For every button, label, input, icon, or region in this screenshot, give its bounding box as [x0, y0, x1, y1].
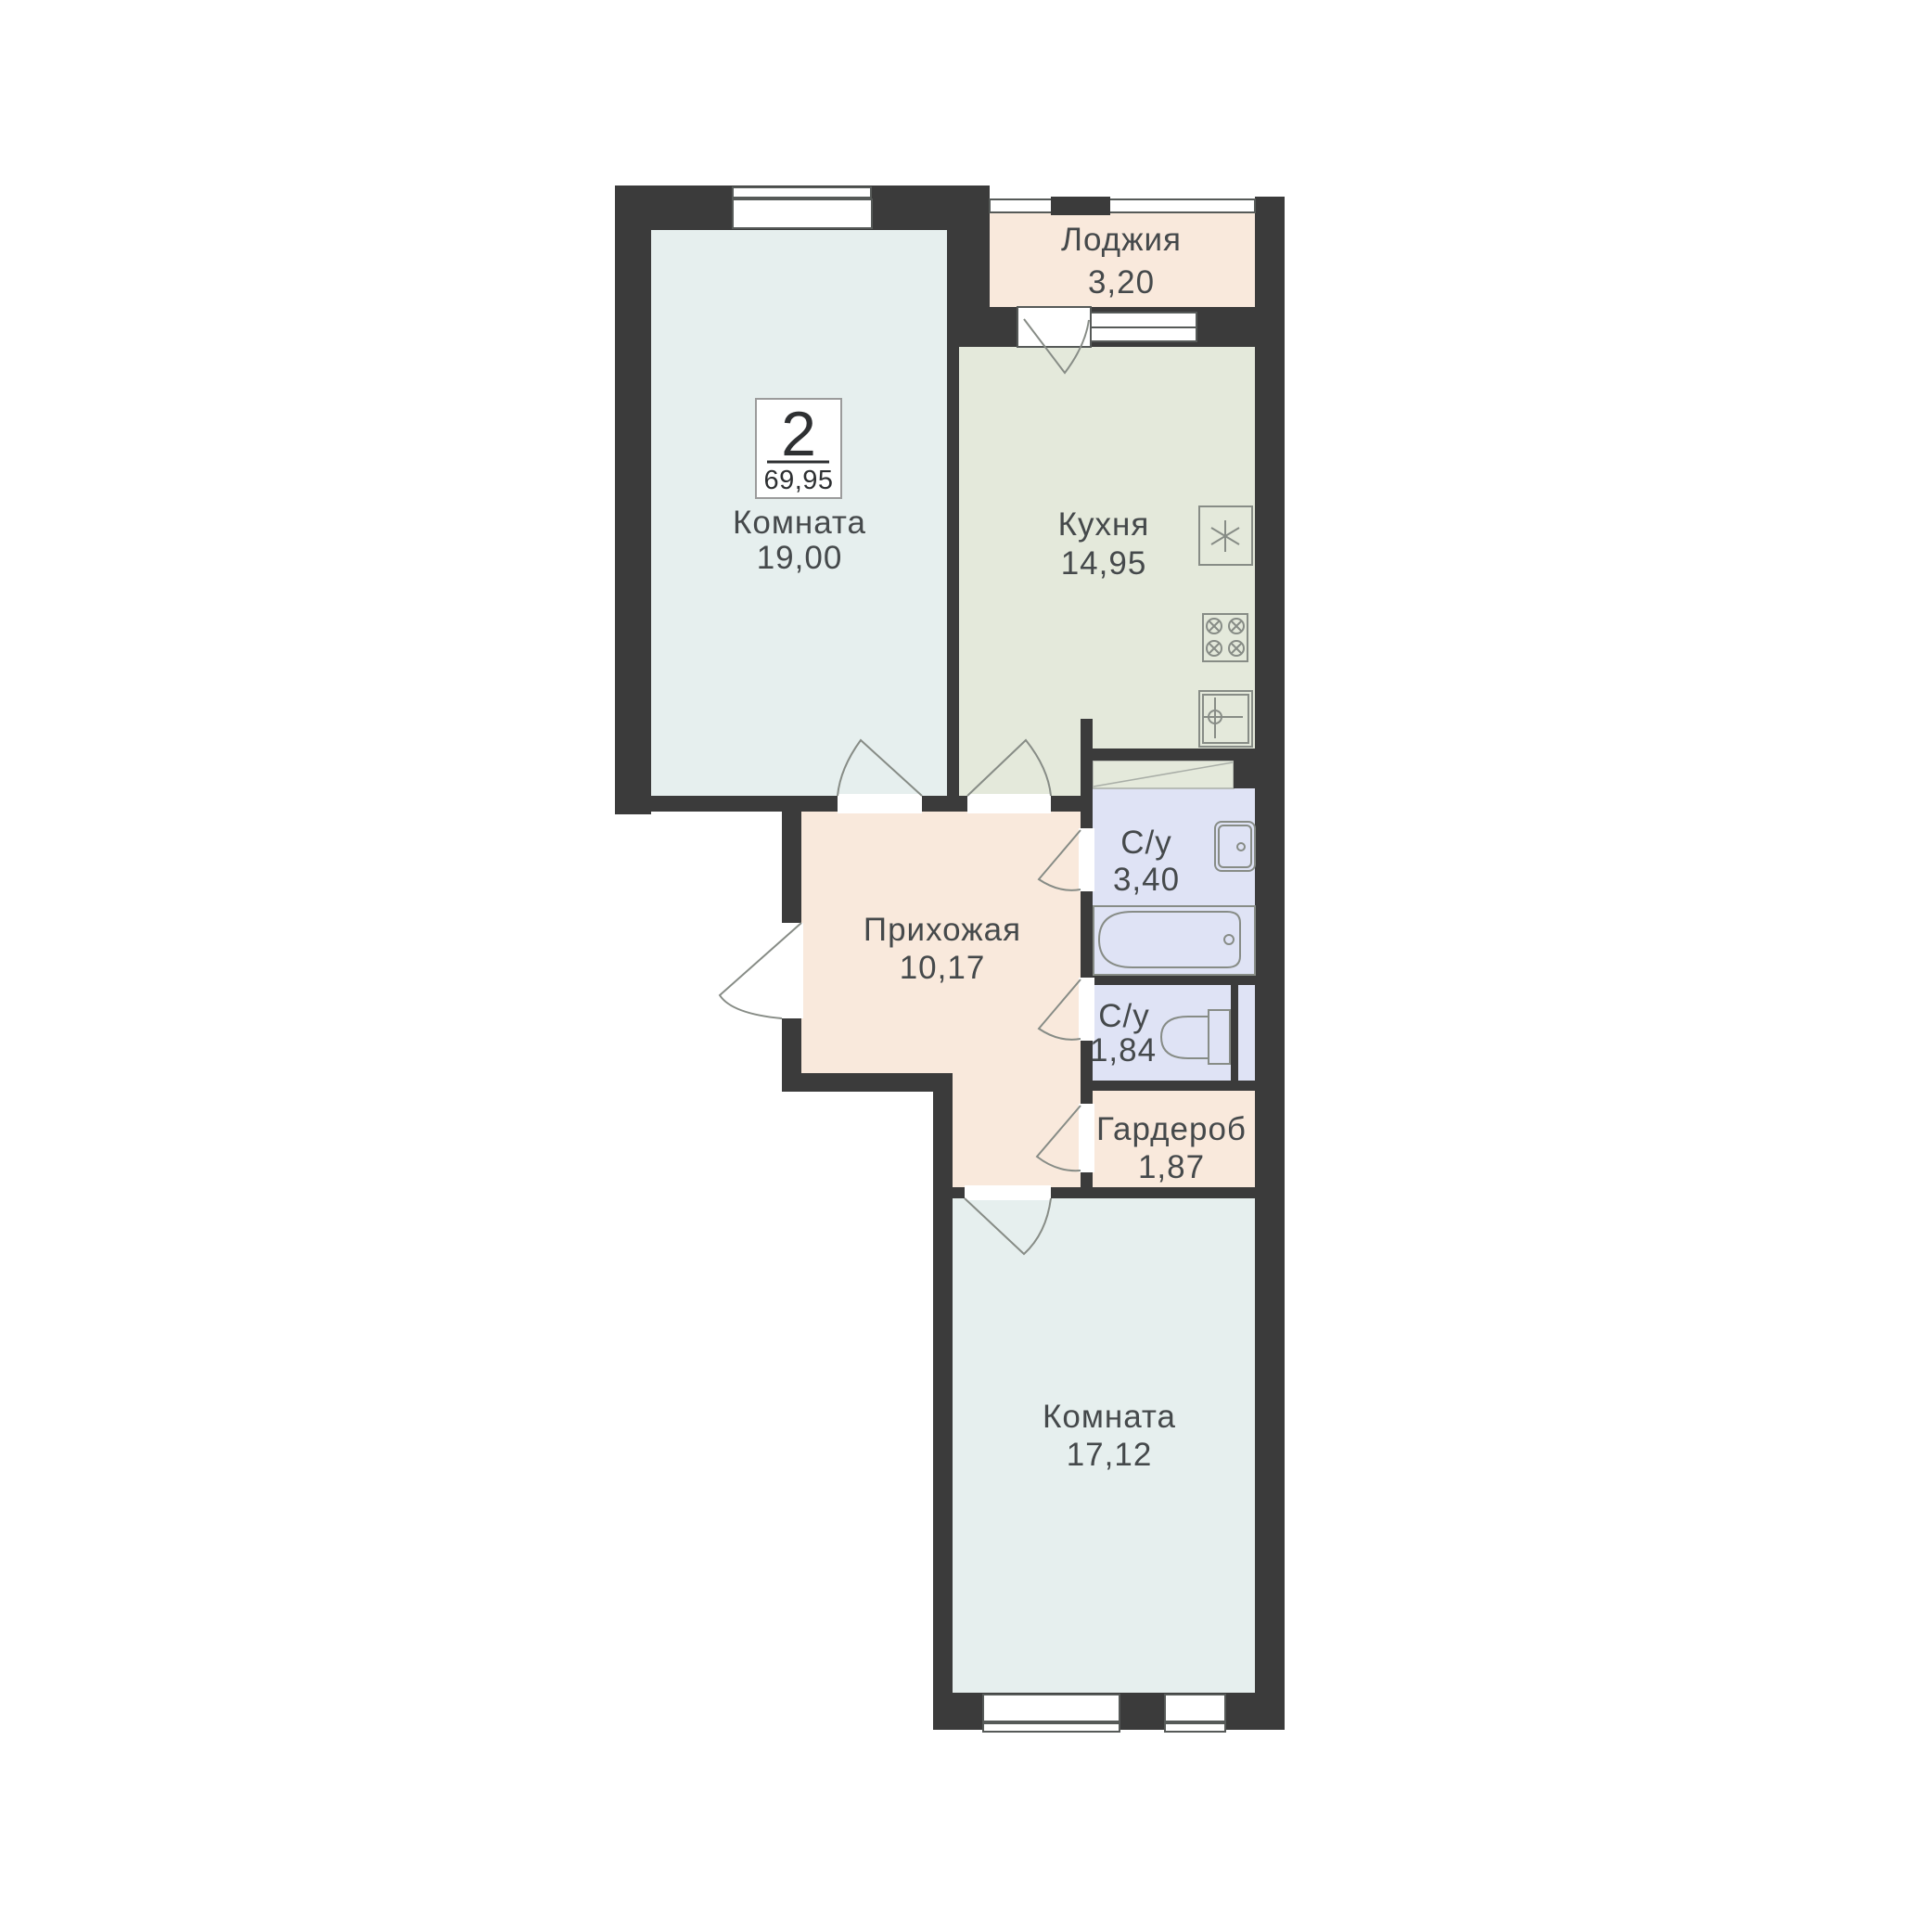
apartment-badge: 2 69,95 [756, 399, 841, 498]
room-label: С/у [1098, 998, 1150, 1034]
kitchen-duct-niche [1093, 761, 1234, 788]
wall-segment [959, 186, 990, 307]
room-label-bathroom: С/у 3,40 [1113, 825, 1180, 898]
floor-plan: Лоджия 3,20 Комната 19,00 Кухня 14,95 Пр… [0, 0, 1932, 1932]
wall-segment [615, 796, 838, 812]
window-living-2-a-sill [983, 1723, 1120, 1732]
room-area: 14,95 [1061, 545, 1147, 582]
loggia-glazing-post [1051, 197, 1110, 215]
window-living-1-sill [733, 187, 871, 198]
window-living-2-b [1165, 1695, 1225, 1721]
window-living-2-b-sill [1165, 1723, 1225, 1732]
room-area: 3,40 [1113, 862, 1180, 898]
door-opening-toilet [1079, 978, 1094, 1041]
wall-segment [1255, 197, 1285, 1730]
room-area: 3,20 [1088, 264, 1155, 301]
room-area: 1,87 [1138, 1149, 1205, 1185]
room-area: 19,00 [757, 540, 843, 576]
wall-segment [615, 186, 651, 814]
door-opening-entrance [780, 923, 803, 1018]
room-label: Прихожая [864, 912, 1021, 948]
wall-segment [1093, 975, 1255, 985]
door-opening-living-2 [965, 1185, 1051, 1200]
room-area: 10,17 [900, 950, 986, 986]
wall-segment [933, 1073, 953, 1730]
wall-segment [922, 796, 967, 812]
room-label: Кухня [1058, 506, 1150, 543]
balcony-door-leaf [1017, 307, 1091, 347]
loggia-glazing [990, 199, 1255, 212]
wall-segment [782, 812, 801, 923]
room-label: Комната [1043, 1399, 1176, 1435]
wall-segment [1093, 1081, 1257, 1091]
door-opening-wardrobe [1079, 1104, 1094, 1172]
room-label: Комната [733, 505, 866, 541]
door-opening-bathroom [1079, 828, 1094, 891]
wall-segment [1093, 748, 1234, 761]
window-living-1 [733, 199, 872, 228]
door-opening-living-1 [838, 794, 922, 813]
door-opening-kitchen [967, 794, 1051, 813]
wall-segment [1231, 985, 1238, 1081]
wall-segment [782, 1073, 934, 1092]
wall-segment [947, 230, 959, 796]
room-label: С/у [1120, 825, 1172, 861]
room-area: 1,84 [1090, 1032, 1157, 1068]
room-label-toilet: С/у 1,84 [1090, 998, 1157, 1068]
badge-total-area: 69,95 [763, 466, 833, 495]
room-label: Гардероб [1096, 1111, 1247, 1147]
badge-rooms-count: 2 [781, 399, 816, 469]
floor-plan-page: Лоджия 3,20 Комната 19,00 Кухня 14,95 Пр… [0, 0, 1932, 1932]
wall-segment [782, 1018, 801, 1073]
room-label: Лоджия [1061, 222, 1182, 258]
room-area: 17,12 [1067, 1437, 1153, 1473]
window-living-2-a [983, 1695, 1120, 1721]
wall-segment [1234, 748, 1255, 788]
